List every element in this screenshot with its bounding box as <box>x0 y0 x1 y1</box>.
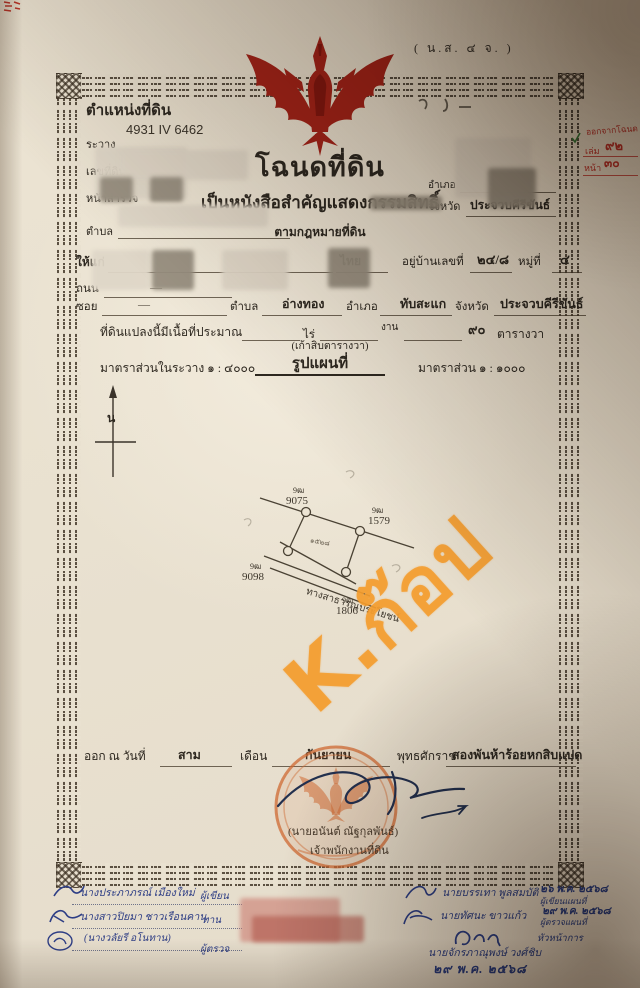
position-header: ตำแหน่งที่ดิน <box>86 103 171 120</box>
checker-role: ทาน <box>202 915 221 927</box>
issue-day: สาม <box>178 748 201 762</box>
redacted-owner-3 <box>222 250 288 290</box>
margin-book-label: เล่ม <box>585 146 600 156</box>
officer-name: (นายอนันต์ ณัฐกุลพันธ์) <box>288 826 398 839</box>
chief-signature <box>452 926 504 950</box>
issue-prefix: ออก ณ วันที่ <box>84 750 146 764</box>
garuda-emblem-icon <box>240 30 400 158</box>
redacted-block-1 <box>100 177 133 202</box>
moo-value: ๔ <box>560 253 570 268</box>
writer-signature <box>52 882 86 900</box>
margin-book-value: ๙๒ <box>605 139 623 154</box>
pencil-scribble <box>415 95 485 115</box>
scale-right: มาตราส่วน ๑ : ๑๐๐๐ <box>418 362 525 376</box>
tambon-label: ตำบล <box>86 226 113 239</box>
border-corner-top-right <box>558 73 584 99</box>
margin-note-line1: ออกจากโฉนด <box>586 124 639 137</box>
redacted-stamp-pink2 <box>252 916 364 942</box>
writer-name: นางประภาภรณ์ เมืองใหม่ <box>80 888 195 900</box>
amphoe-label-top: อำเภอ <box>428 180 456 192</box>
map-writer-signature <box>404 882 438 902</box>
examiner-name: (นางวลัยรี อโนทาน) <box>84 933 171 945</box>
examiner-signature <box>46 930 76 952</box>
redacted-owner-2 <box>152 250 194 290</box>
map-writer-name: นายบรรเทา พูลสมบัติ <box>442 888 538 900</box>
officer-title: เจ้าพนักงานที่ดิน <box>310 845 389 858</box>
map-writer-date: ๒๖ พ.ค. ๒๕๖๘ <box>540 884 608 896</box>
deed-subtitle2: ตามกฎหมายที่ดิน <box>140 226 500 240</box>
map-section-title: รูปแผนที่ <box>255 356 385 376</box>
scale-left: มาตราส่วนในระวาง ๑ : ๔๐๐๐ <box>100 362 255 376</box>
amphoe2-value: ทับสะแก <box>400 297 446 311</box>
map-sheet-number: 4931 IV 6462 <box>126 123 203 138</box>
area-spelled: (เก้าสิบตารางวา) <box>240 341 420 353</box>
redacted-survey-value <box>118 205 268 227</box>
soi-dash: — <box>138 298 150 312</box>
border-strip-left <box>57 98 81 862</box>
tambon2-label: ตำบล <box>230 301 258 314</box>
red-stamp-fragment <box>2 0 22 16</box>
ngan-label: งาน <box>381 322 398 334</box>
area-prefix: ที่ดินแปลงนี้มีเนื้อที่ประมาณ <box>100 326 242 340</box>
redacted-land-no <box>120 150 248 180</box>
map-checker-name: นายทัศนะ ขาวแก้ว <box>440 911 526 923</box>
margin-page-value: ๓๐ <box>604 157 620 171</box>
house-no-value: ๒๔/๘ <box>477 253 509 268</box>
changwat2-label: จังหวัด <box>455 301 489 314</box>
form-code-note: ( น.ส. ๔ จ. ) <box>414 42 514 56</box>
redacted-right-2 <box>488 168 536 208</box>
redacted-owner-1 <box>92 250 150 290</box>
margin-page-label: หน้า <box>584 163 601 173</box>
map-checker-role: ผู้ตรวจแผนที่ <box>540 918 587 928</box>
land-title-deed-page: ( น.ส. ๔ จ. ) ตำแหน่งที่ดิน 4931 IV 6462… <box>0 0 640 988</box>
writer-role: ผู้เขียน <box>200 891 229 903</box>
wa-value: ๙๐ <box>468 323 485 338</box>
redacted-owner-4 <box>328 248 370 288</box>
officer-signature <box>272 762 472 832</box>
chief-role: หัวหน้าการ <box>537 934 583 945</box>
compass-north-label: น <box>107 412 115 426</box>
soi-label: ซอย <box>76 301 97 314</box>
redacted-block-2 <box>150 177 183 202</box>
redacted-right-3 <box>370 196 442 210</box>
checker-signature <box>48 906 84 926</box>
house-no-label: อยู่บ้านเลขที่ <box>402 256 464 269</box>
changwat2-value: ประจวบคีรีขันธ์ <box>500 297 583 311</box>
wa-label: ตารางวา <box>497 328 544 342</box>
stamp-date: ๒๙ พ.ค. ๒๕๖๘ <box>433 962 527 976</box>
map-checker-signature <box>400 906 434 928</box>
green-check-mark <box>571 132 581 144</box>
issue-month-label: เดือน <box>240 750 267 764</box>
border-corner-top-left <box>56 73 82 99</box>
checker-name: นางสาวปิยมา ชาวเรือนคาน <box>80 912 206 924</box>
moo-label: หมู่ที่ <box>518 256 541 269</box>
tambon2-value: อ่างทอง <box>282 297 324 311</box>
amphoe2-label: อำเภอ <box>346 301 378 314</box>
north-compass-icon <box>88 385 148 480</box>
issue-year: สองพันห้าร้อยหกสิบแปด <box>452 748 582 762</box>
